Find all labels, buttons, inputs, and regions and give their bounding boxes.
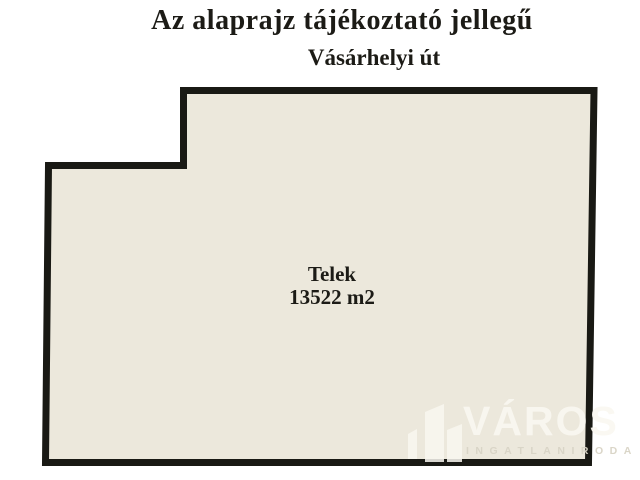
plot-plan-image: Az alaprajz tájékoztató jellegű Vásárhel… — [0, 0, 640, 480]
buildings-icon — [406, 400, 464, 464]
plot-label-name: Telek — [289, 263, 375, 286]
watermark-subtitle-text: INGATLANIRODA — [466, 445, 638, 457]
watermark-brand-text: VÁROS — [463, 398, 619, 445]
plot-label: Telek 13522 m2 — [289, 263, 375, 309]
plot-area-value: 13522 m2 — [289, 286, 375, 309]
agency-watermark: VÁROS INGATLANIRODA — [406, 398, 640, 468]
